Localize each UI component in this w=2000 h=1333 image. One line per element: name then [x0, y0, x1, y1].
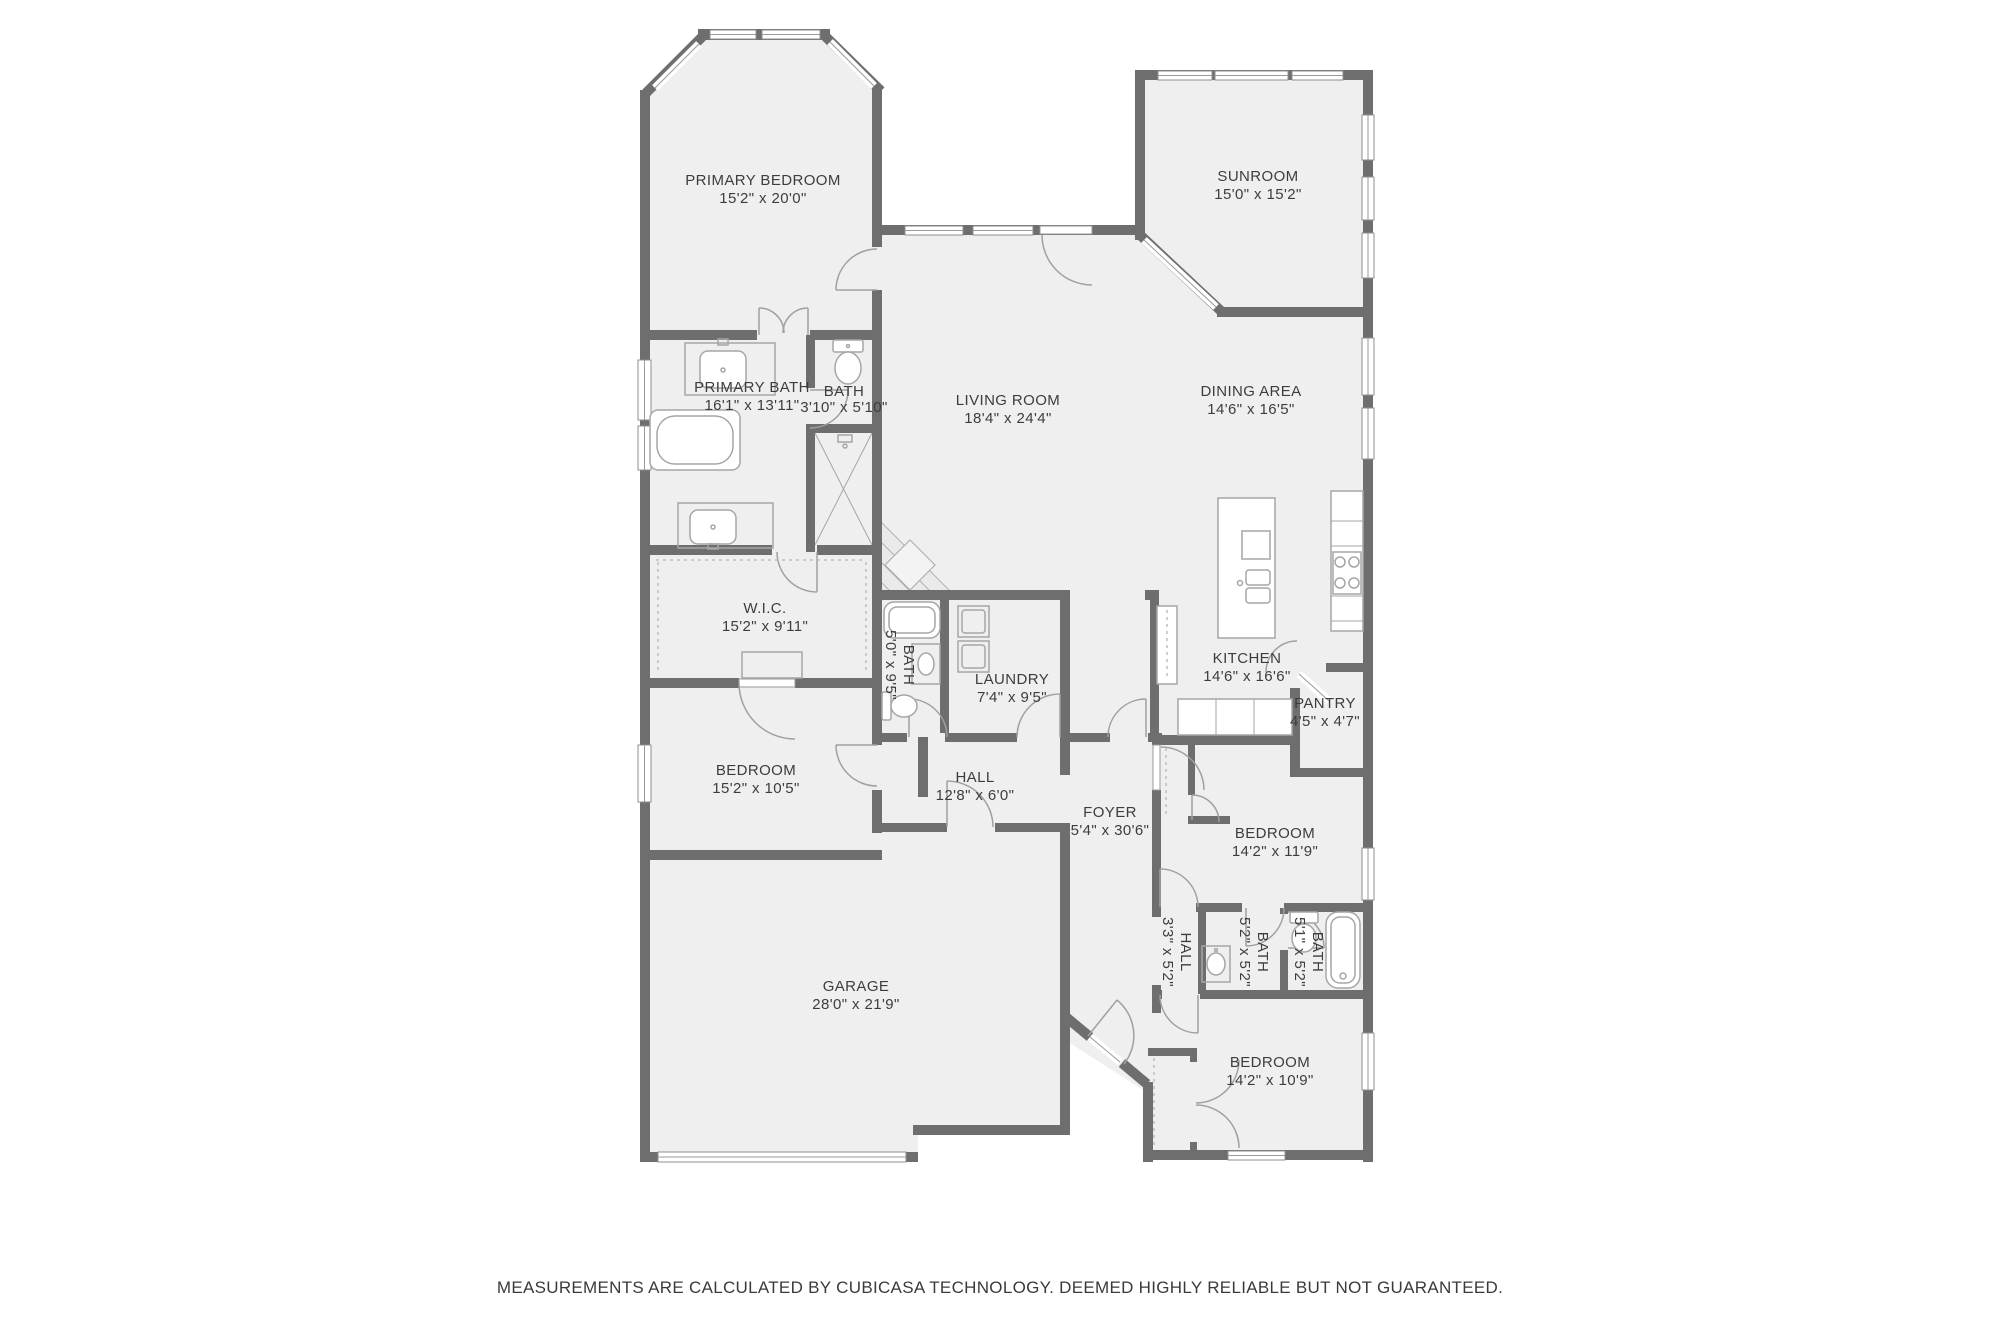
- bedroom-2-dims: 15'2" x 10'5": [712, 780, 799, 797]
- dining-area-dims: 14'6" x 16'5": [1207, 401, 1294, 418]
- floor-plan-drawing: PRIMARY BEDROOM 15'2" x 20'0" SUNROOM 15…: [0, 0, 2000, 1333]
- sunroom-name: SUNROOM: [1217, 168, 1298, 185]
- room-label-bedroom-2: BEDROOM 15'2" x 10'5": [712, 762, 799, 797]
- bath-small-name: BATH: [824, 383, 865, 400]
- garage-name: GARAGE: [823, 978, 890, 995]
- dining-area-name: DINING AREA: [1200, 383, 1301, 400]
- pantry-name: PANTRY: [1294, 695, 1356, 712]
- bath-2-dims: 5'2" x 5'2": [1236, 917, 1253, 987]
- kitchen-bottom-counter: [1178, 699, 1292, 735]
- primary-bedroom-dims: 15'2" x 20'0": [719, 190, 806, 207]
- primary-bath-tub: [650, 410, 740, 470]
- foyer-dims: 5'4" x 30'6": [1071, 822, 1150, 839]
- room-label-kitchen: KITCHEN 14'6" x 16'6": [1203, 650, 1290, 685]
- room-label-bedroom-3: BEDROOM 14'2" x 11'9": [1232, 825, 1318, 860]
- bedroom-3-name: BEDROOM: [1235, 825, 1315, 842]
- bath-2-name: BATH: [1254, 932, 1271, 973]
- bath-3-name: BATH: [1309, 932, 1326, 973]
- wic-name: W.I.C.: [743, 600, 786, 617]
- room-label-pantry: PANTRY 4'5" x 4'7": [1290, 695, 1360, 730]
- hall-small-dims: 3'3" x 5'2": [1159, 917, 1176, 987]
- hall-small-name: HALL: [1177, 932, 1194, 971]
- floor-plan-page: PRIMARY BEDROOM 15'2" x 20'0" SUNROOM 15…: [0, 0, 2000, 1333]
- bedroom-2-name: BEDROOM: [716, 762, 796, 779]
- bath-3-dims: 5'1" x 5'2": [1291, 917, 1308, 987]
- garage-dims: 28'0" x 21'9": [812, 996, 899, 1013]
- kitchen-dims: 14'6" x 16'6": [1203, 668, 1290, 685]
- kitchen-name: KITCHEN: [1213, 650, 1282, 667]
- room-label-sunroom: SUNROOM 15'0" x 15'2": [1214, 168, 1301, 203]
- bedroom-3-dims: 14'2" x 11'9": [1232, 843, 1318, 860]
- room-label-laundry: LAUNDRY 7'4" x 9'5": [975, 671, 1049, 706]
- kitchen-left-counter: [1157, 606, 1177, 684]
- primary-bedroom-name: PRIMARY BEDROOM: [685, 172, 840, 189]
- bath-small-dims: 3'10" x 5'10": [800, 399, 887, 416]
- room-label-primary-bath: PRIMARY BATH 16'1" x 13'11": [694, 379, 810, 414]
- room-label-garage: GARAGE 28'0" x 21'9": [812, 978, 899, 1013]
- primary-bath-dims: 16'1" x 13'11": [704, 397, 799, 414]
- primary-bath-name: PRIMARY BATH: [694, 379, 810, 396]
- small-bath-toilet: [833, 340, 863, 384]
- room-label-living-room: LIVING ROOM 18'4" x 24'4": [956, 392, 1060, 427]
- kitchen-island: [1218, 498, 1275, 638]
- hall-dims: 12'8" x 6'0": [936, 787, 1015, 804]
- laundry-dims: 7'4" x 9'5": [977, 689, 1047, 706]
- hall-name: HALL: [955, 769, 994, 786]
- room-label-bedroom-4: BEDROOM 14'2" x 10'9": [1226, 1054, 1313, 1089]
- bedroom-4-name: BEDROOM: [1230, 1054, 1310, 1071]
- kitchen-counter-cooktop: [1331, 491, 1363, 631]
- laundry-name: LAUNDRY: [975, 671, 1049, 688]
- sunroom-dims: 15'0" x 15'2": [1214, 186, 1301, 203]
- pantry-dims: 4'5" x 4'7": [1290, 713, 1360, 730]
- bedroom-4-dims: 14'2" x 10'9": [1226, 1072, 1313, 1089]
- bath-hall-name: BATH: [900, 645, 917, 686]
- bath-hall-dims: 5'0" x 9'5": [882, 630, 899, 700]
- living-room-dims: 18'4" x 24'4": [964, 410, 1051, 427]
- disclaimer-text: MEASUREMENTS ARE CALCULATED BY CUBICASA …: [497, 1278, 1503, 1297]
- foyer-name: FOYER: [1083, 804, 1137, 821]
- living-room-name: LIVING ROOM: [956, 392, 1060, 409]
- wic-dims: 15'2" x 9'11": [722, 618, 808, 635]
- room-label-dining-area: DINING AREA 14'6" x 16'5": [1200, 383, 1301, 418]
